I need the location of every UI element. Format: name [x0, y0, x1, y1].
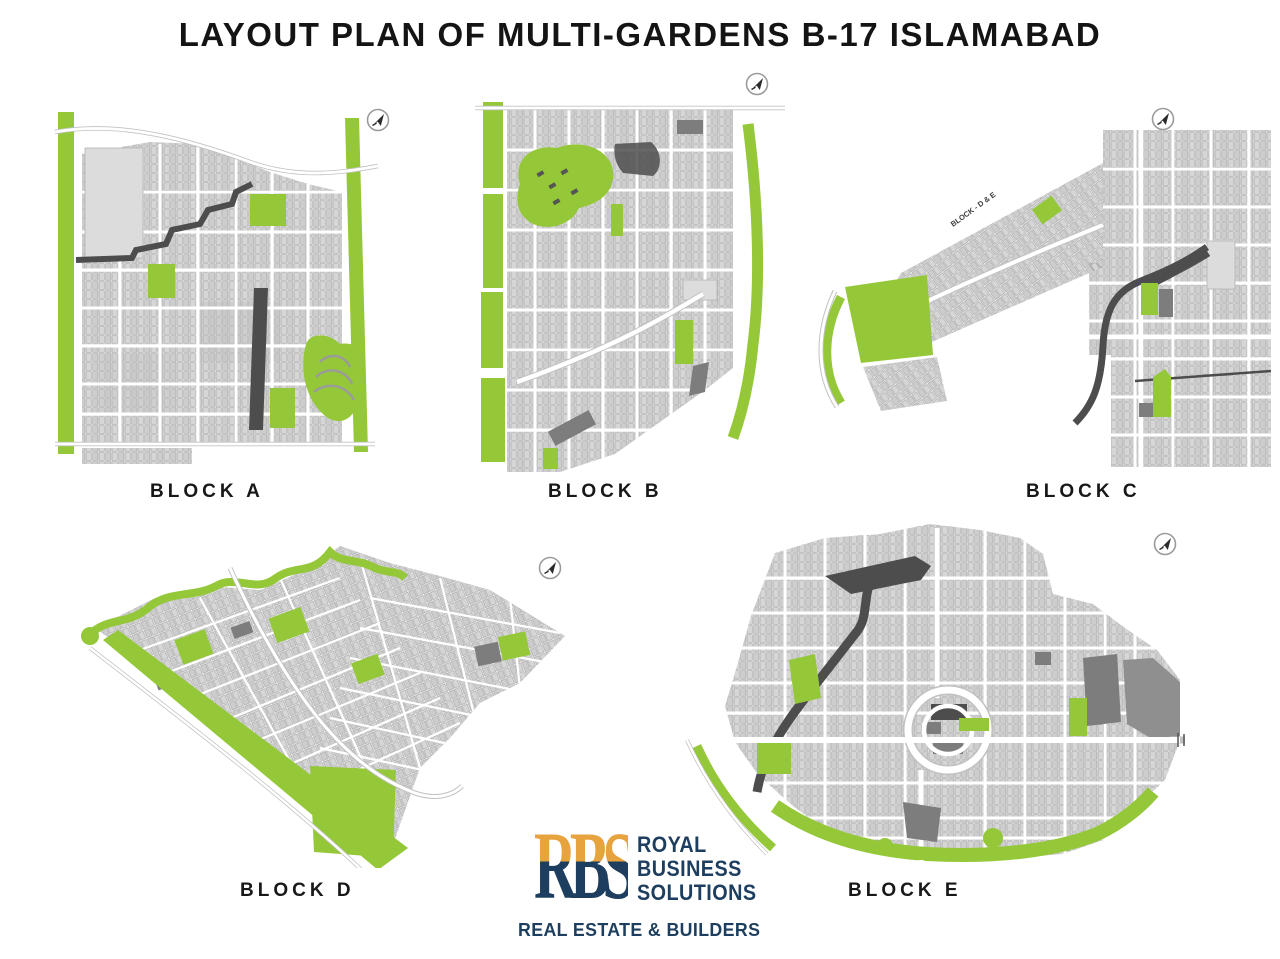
open-plot-area: [1207, 241, 1235, 289]
block-a-label: BLOCK A: [150, 481, 264, 503]
block-de-road-label: BLOCK - D & E: [949, 190, 997, 229]
north-arrow-icon: [368, 110, 389, 131]
rbs-logo: RBS ROYAL BUSINESS SOLUTIONS REAL ESTATE…: [518, 818, 766, 950]
north-arrow-icon: [1155, 534, 1176, 555]
logo-line-solutions: SOLUTIONS: [637, 881, 756, 905]
block-b-map: [465, 72, 795, 482]
rbs-logo-text: ROYAL BUSINESS SOLUTIONS: [637, 833, 756, 905]
block-c-label: BLOCK C: [1026, 481, 1141, 503]
layout-plan-page: LAYOUT PLAN OF MULTI-GARDENS B-17 ISLAMA…: [0, 0, 1280, 959]
page-title: LAYOUT PLAN OF MULTI-GARDENS B-17 ISLAMA…: [0, 16, 1280, 54]
block-a-map: [40, 92, 430, 472]
rbs-logo-monogram: RBS: [534, 822, 628, 910]
north-arrow-icon: [540, 558, 561, 579]
block-d-label: BLOCK D: [240, 880, 355, 902]
rbs-logo-tagline: REAL ESTATE & BUILDERS: [518, 919, 756, 941]
open-plot-area: [85, 148, 143, 258]
logo-line-business: BUSINESS: [637, 857, 756, 881]
logo-line-royal: ROYAL: [637, 833, 756, 857]
north-arrow-icon: [747, 74, 768, 95]
block-b-label: BLOCK B: [548, 481, 663, 503]
block-e-label: BLOCK E: [848, 880, 962, 902]
north-arrow-icon: [1153, 109, 1174, 130]
block-c-map: BLOCK - D & E: [805, 105, 1275, 475]
